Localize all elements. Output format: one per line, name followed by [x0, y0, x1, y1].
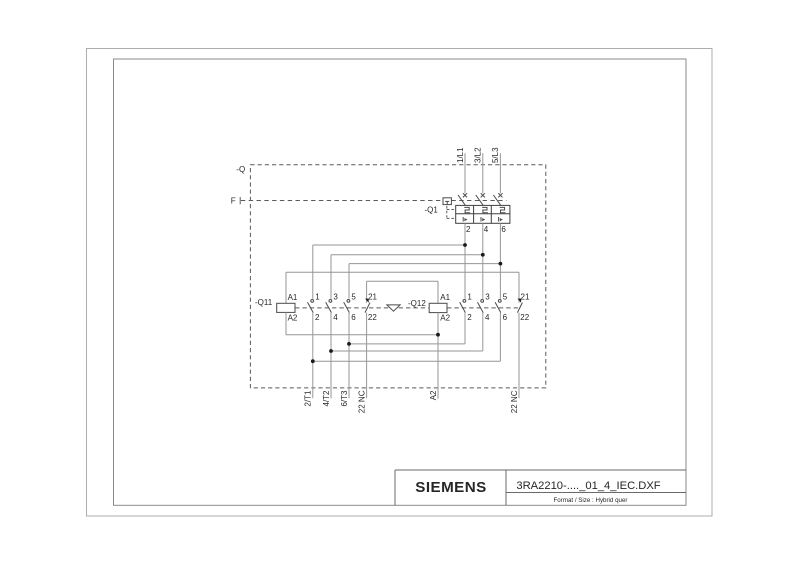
svg-text:SIEMENS: SIEMENS	[415, 479, 487, 496]
svg-text:5: 5	[351, 293, 356, 302]
svg-text:-Q11: -Q11	[255, 298, 273, 307]
svg-text:2: 2	[315, 313, 320, 322]
svg-text:6: 6	[501, 225, 506, 234]
svg-text:3: 3	[333, 293, 338, 302]
svg-text:3RA2210-...._01_4_IEC.DXF: 3RA2210-...._01_4_IEC.DXF	[516, 480, 660, 492]
svg-text:A2: A2	[440, 313, 450, 322]
svg-text:-Q12: -Q12	[408, 299, 426, 308]
svg-text:2/T1: 2/T1	[304, 390, 313, 407]
svg-text:F: F	[231, 197, 236, 206]
svg-text:4/T2: 4/T2	[322, 390, 331, 407]
svg-text:1/L1: 1/L1	[456, 147, 465, 163]
svg-text:4: 4	[485, 313, 490, 322]
svg-text:3: 3	[485, 293, 490, 302]
svg-text:21: 21	[521, 292, 530, 301]
svg-text:6: 6	[351, 313, 356, 322]
svg-text:22: 22	[520, 313, 529, 322]
svg-text:5: 5	[503, 293, 508, 302]
svg-text:Format / Size : Hybrid quer: Format / Size : Hybrid quer	[554, 497, 628, 504]
svg-text:A2: A2	[288, 313, 298, 322]
svg-text:1: 1	[315, 293, 320, 302]
svg-text:2: 2	[466, 225, 471, 234]
svg-text:6/T3: 6/T3	[340, 390, 349, 407]
svg-text:22 NC: 22 NC	[510, 390, 519, 413]
svg-text:3/L2: 3/L2	[474, 147, 483, 163]
svg-text:A1: A1	[440, 293, 450, 302]
svg-text:6: 6	[503, 313, 508, 322]
svg-text:22 NC: 22 NC	[357, 390, 366, 413]
svg-text:2: 2	[467, 313, 472, 322]
svg-text:4: 4	[484, 225, 489, 234]
svg-text:-Q1: -Q1	[425, 206, 439, 215]
svg-text:4: 4	[333, 313, 338, 322]
svg-text:22: 22	[368, 313, 377, 322]
svg-text:A1: A1	[288, 293, 298, 302]
svg-text:1: 1	[467, 293, 472, 302]
svg-text:5/L3: 5/L3	[491, 147, 500, 163]
svg-text:21: 21	[368, 292, 377, 301]
svg-text:A2: A2	[429, 390, 438, 400]
svg-text:-Q: -Q	[236, 165, 245, 174]
